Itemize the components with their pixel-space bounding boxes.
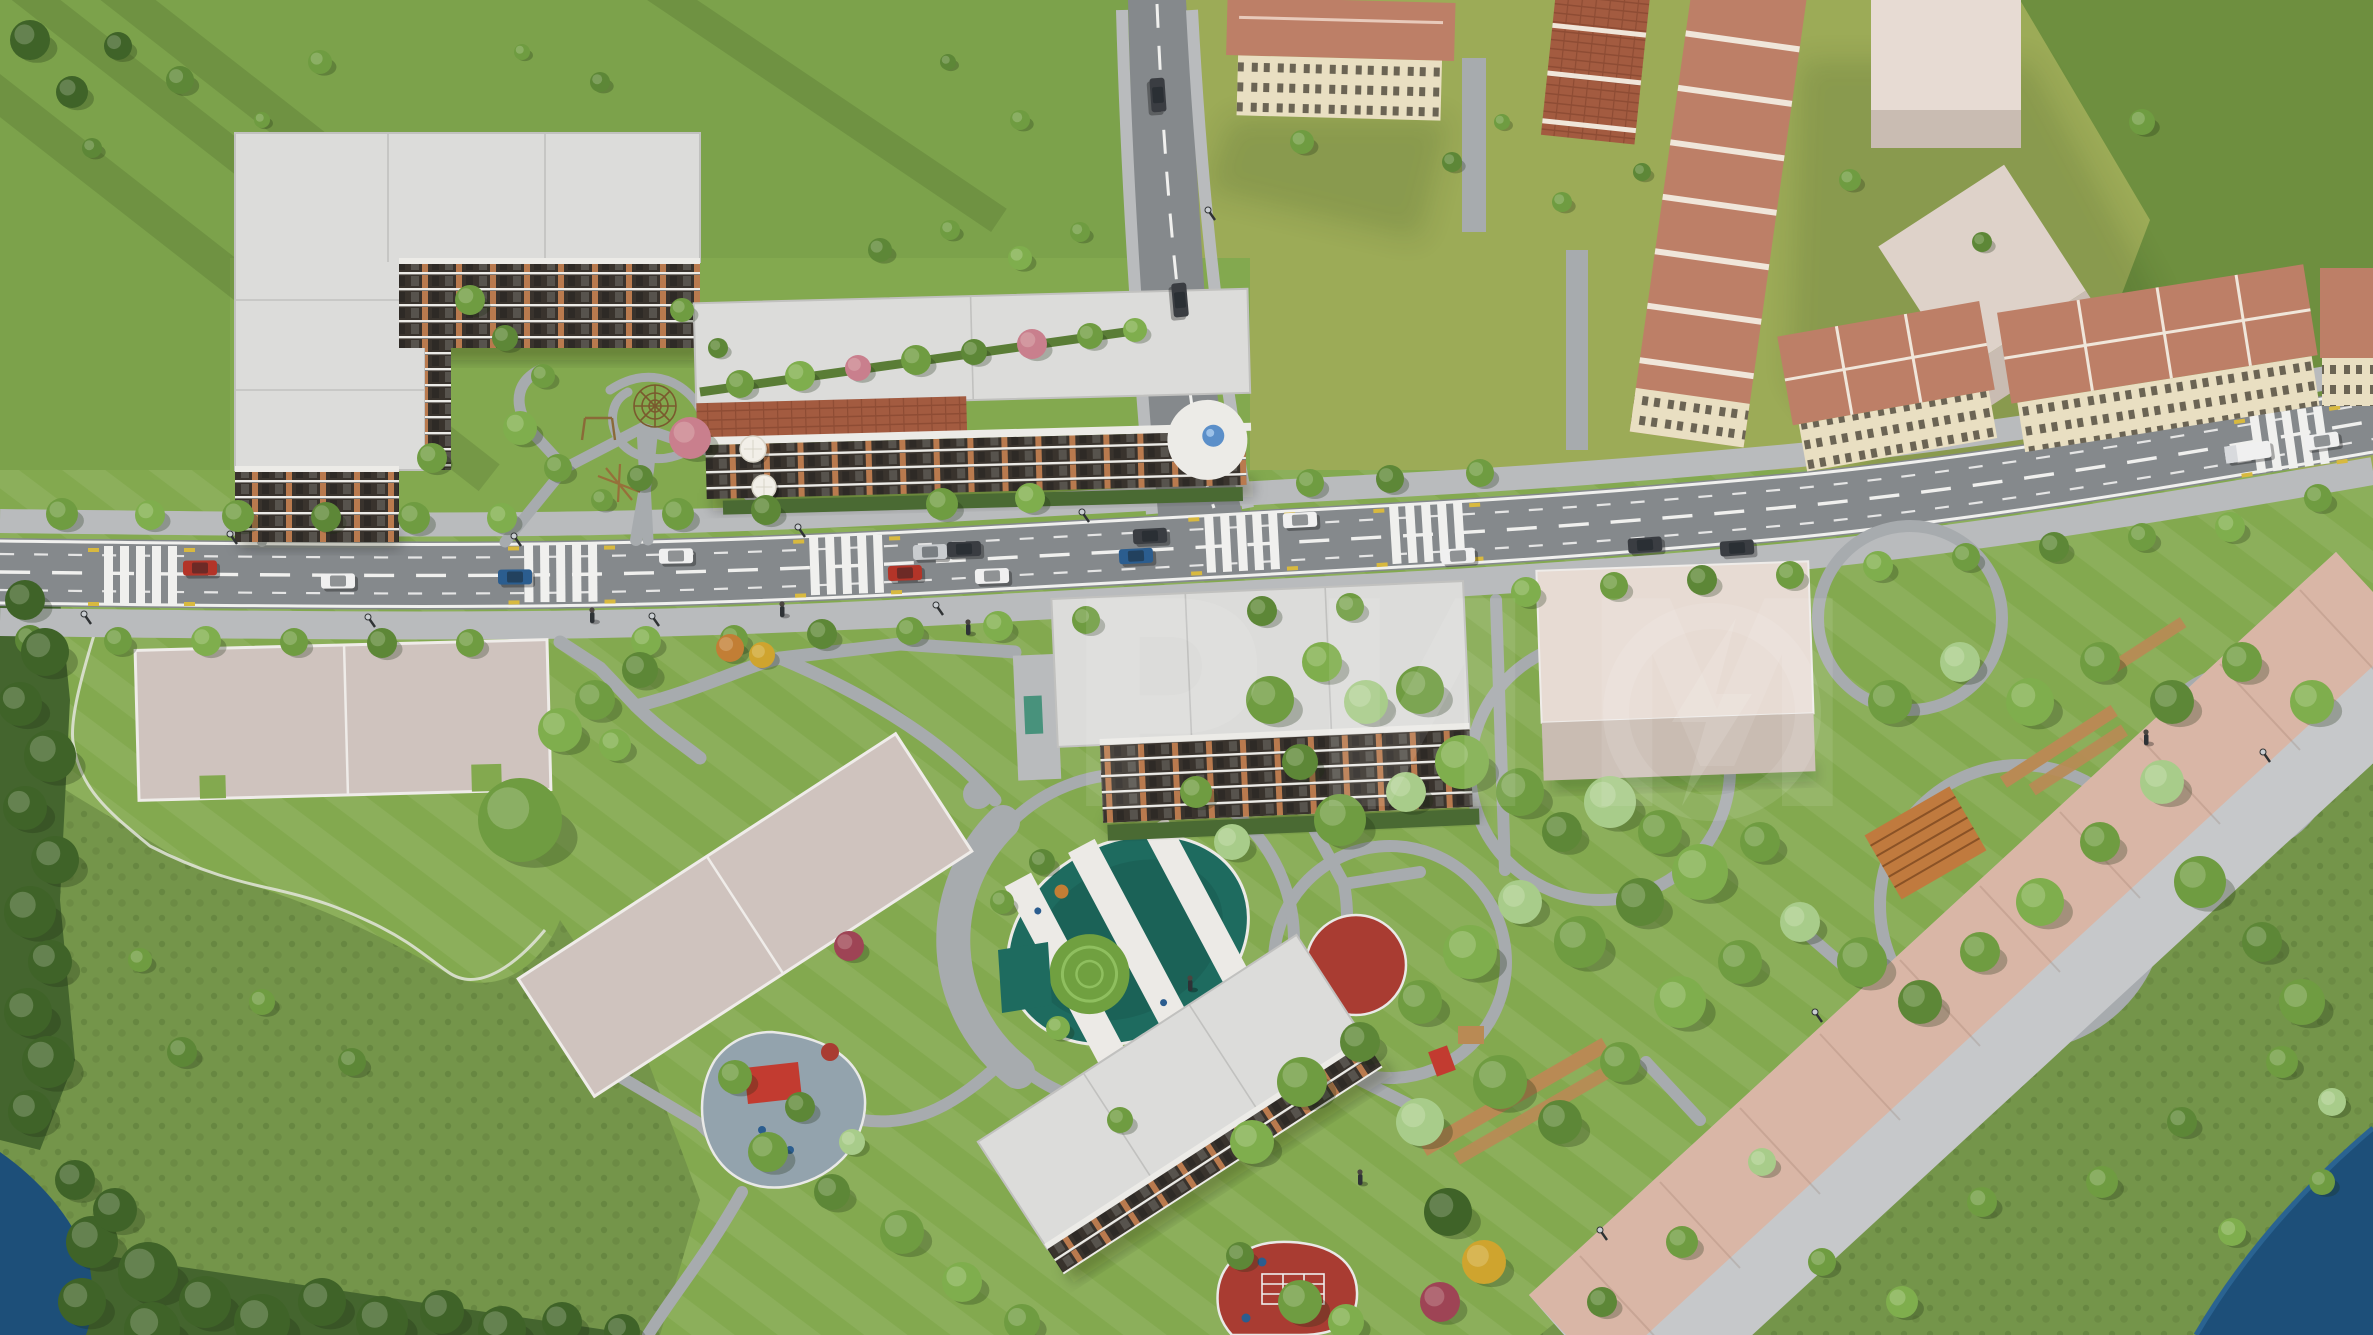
car	[975, 568, 1013, 587]
car	[659, 548, 696, 567]
driveway-vertical	[1566, 250, 1588, 450]
slab-a	[135, 640, 551, 801]
car	[947, 541, 985, 560]
watermark-letters: РИМ	[1060, 542, 1893, 874]
small-pool-near-building-5	[998, 942, 1052, 1013]
watermark: РИМ	[1060, 542, 1893, 874]
car	[888, 565, 926, 584]
car	[498, 569, 535, 587]
building-1-east-facade	[425, 264, 451, 470]
driveway-north	[1462, 58, 1486, 232]
aerial-site-plan-render: РИМ	[0, 0, 2373, 1335]
plain-block-1	[1871, 0, 2021, 148]
car	[913, 544, 951, 563]
car	[183, 560, 220, 578]
building-a-facade	[1237, 55, 1443, 120]
green-van	[1024, 696, 1044, 735]
picnic-table	[1458, 1026, 1484, 1044]
existing-building-a	[1225, 0, 1456, 121]
car	[1146, 78, 1167, 116]
terraced-row-1	[1541, 0, 1650, 145]
apartment-row-me3	[2320, 268, 2373, 406]
building-a-roof	[1226, 0, 1455, 61]
spider-web-climber	[634, 385, 676, 427]
car	[321, 573, 358, 591]
path-junction-disc	[963, 779, 993, 809]
play-spinner	[821, 1043, 839, 1061]
car	[1168, 282, 1189, 320]
car	[1283, 511, 1321, 531]
